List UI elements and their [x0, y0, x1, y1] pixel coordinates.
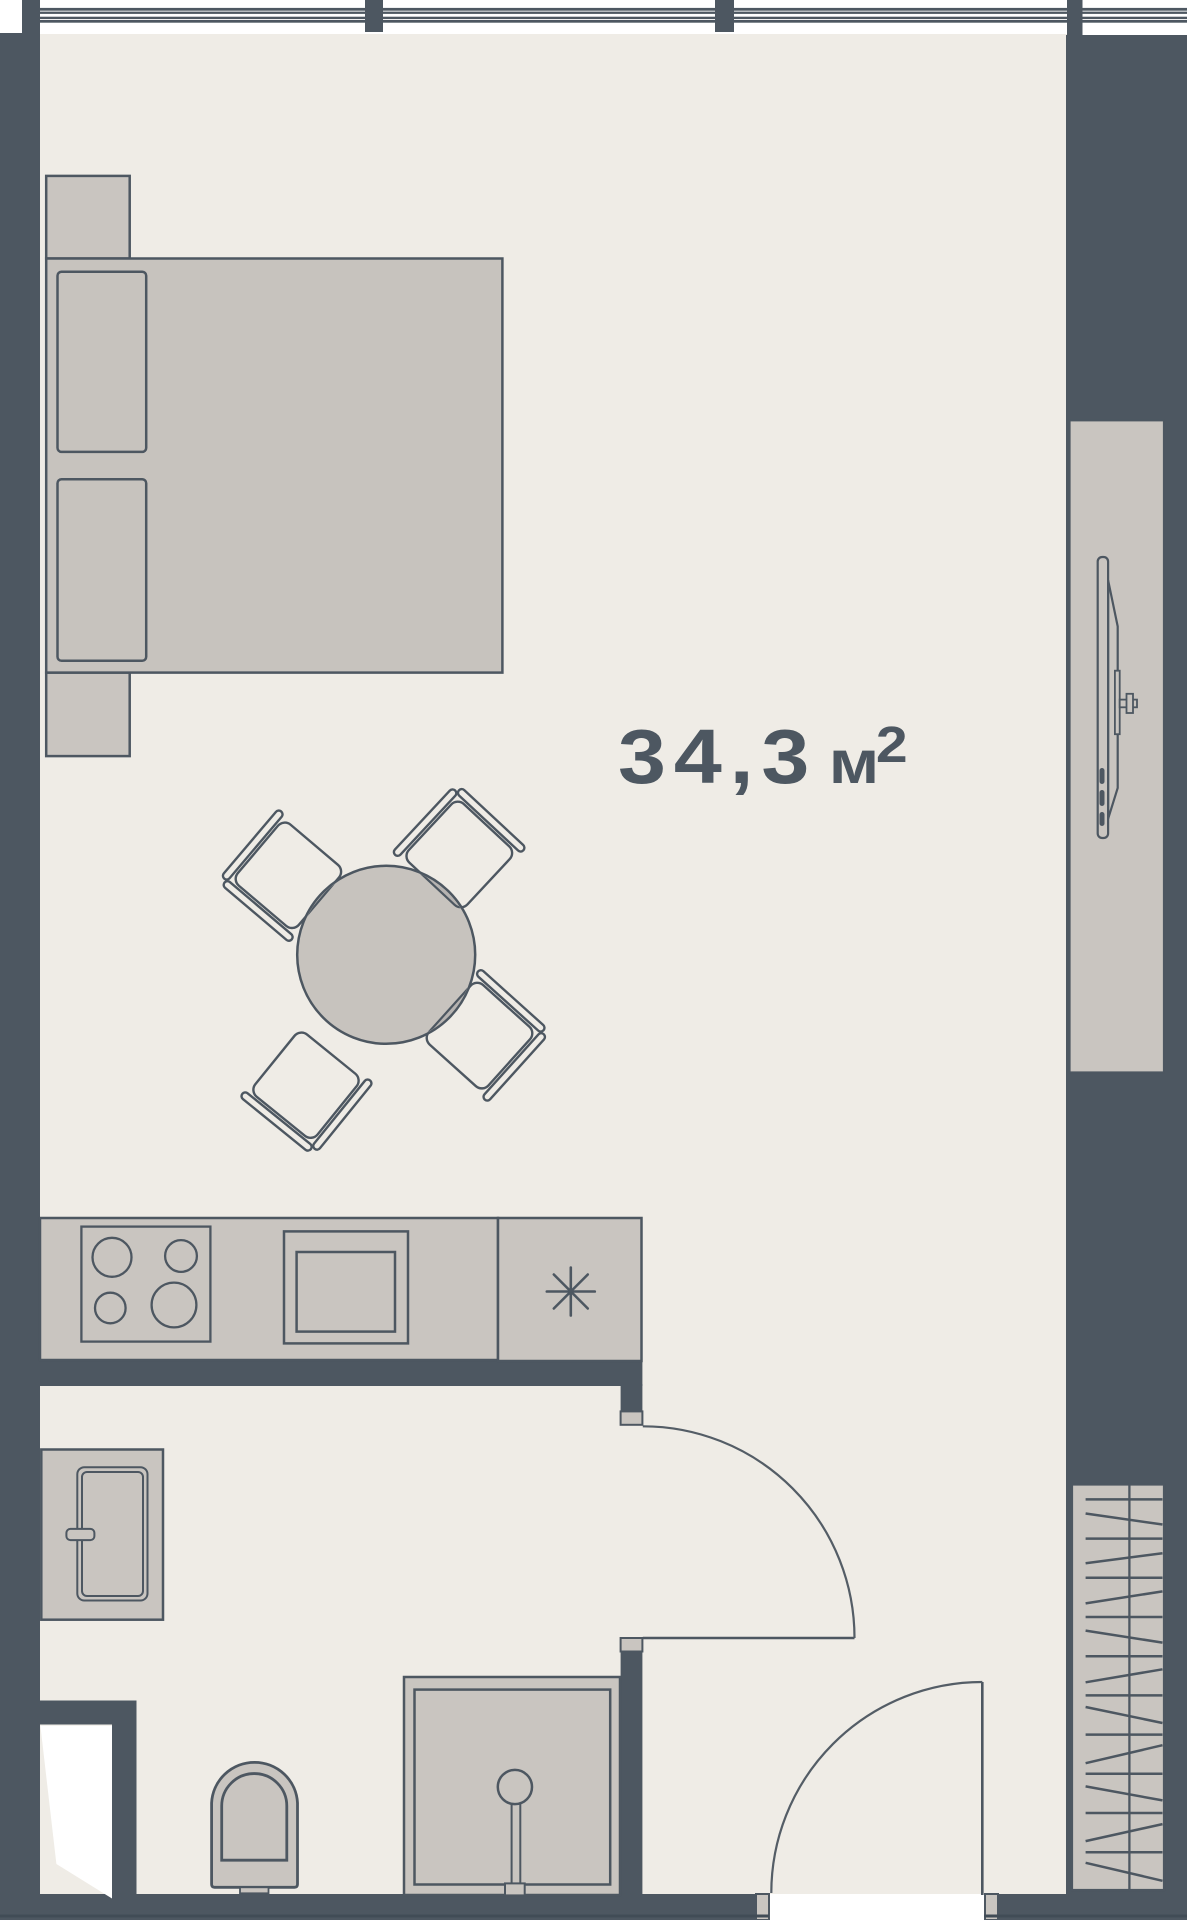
svg-text:34,3м2: 34,3м2	[618, 714, 915, 800]
